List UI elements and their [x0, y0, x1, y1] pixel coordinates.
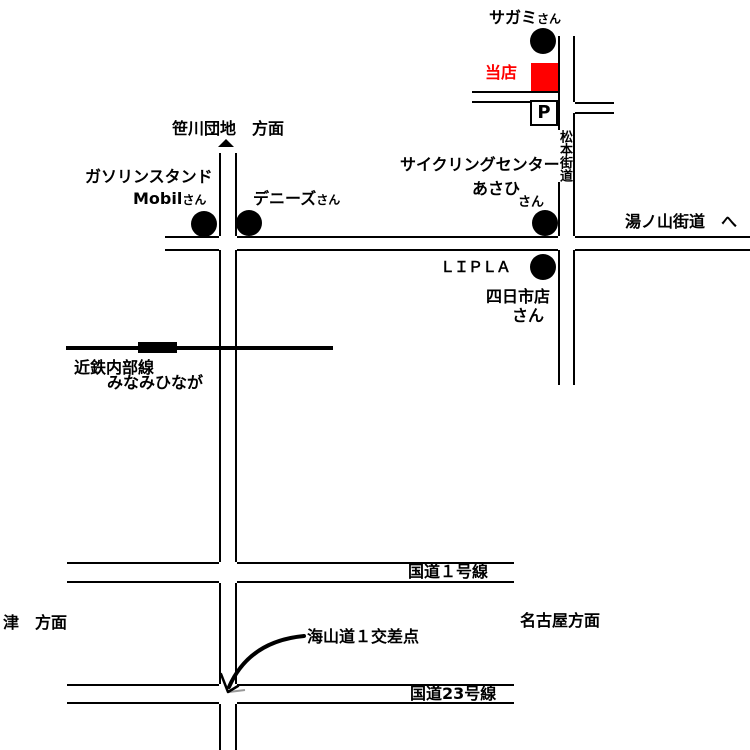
road-matsumoto-right-mid — [573, 113, 575, 236]
dennys-label: デニーズさん — [253, 191, 340, 207]
our-store-label: 当店 — [485, 65, 517, 81]
parking-box: P — [530, 100, 558, 126]
kaisando-intersection-label: 海山道１交差点 — [307, 629, 419, 645]
road-sasagawa-left-4 — [219, 704, 221, 750]
lipla-label: ＬＩＰＬＡ — [440, 260, 510, 275]
cycling-center-label: サイクリングセンター — [400, 157, 560, 173]
road-yunoyama-top-1 — [165, 236, 219, 238]
north-direction-triangle-icon — [218, 139, 234, 147]
road-matsumoto-right-lower — [573, 250, 575, 385]
minamihinaga-label: みなみひなが — [107, 375, 203, 391]
lipla-marker — [530, 254, 556, 280]
road-store-street-top — [472, 91, 558, 93]
intersection-arrow-icon — [212, 626, 322, 706]
route23-label: 国道23号線 — [410, 686, 496, 702]
dennys-marker — [236, 210, 262, 236]
road-store-street-bottom — [472, 101, 530, 103]
road-yunoyama-bottom-3 — [575, 249, 750, 251]
road-route1-top-left — [67, 562, 219, 564]
road-matsumoto-right-upper — [573, 36, 575, 102]
road-yunoyama-top-2 — [237, 236, 558, 238]
road-sasagawa-left-2 — [219, 250, 221, 562]
road-route23-top-left — [67, 684, 219, 686]
road-side-street-bottom — [575, 112, 614, 114]
lipla-branch-label: 四日市店 — [486, 289, 550, 305]
sagami-marker — [530, 28, 556, 54]
mobil-label: Mobilさん — [133, 191, 206, 207]
gas-station-label: ガソリンスタンド — [85, 169, 213, 185]
yunoyama-kaido-label: 湯ノ山街道 へ — [625, 214, 737, 230]
road-matsumoto-left-lower — [558, 250, 560, 385]
road-route23-bottom-left — [67, 702, 219, 704]
asahi-marker — [532, 210, 558, 236]
asahi-label: あさひ — [472, 181, 520, 197]
station-marker — [138, 342, 177, 353]
road-route1-bottom-right — [237, 581, 514, 583]
road-sasagawa-left-1 — [219, 153, 221, 236]
road-sasagawa-right-4 — [235, 704, 237, 750]
railway-line — [66, 346, 333, 350]
road-sasagawa-right-2 — [235, 250, 237, 562]
road-route1-bottom-left — [67, 581, 219, 583]
road-side-street-top — [575, 102, 614, 104]
route1-label: 国道１号線 — [408, 564, 488, 580]
road-yunoyama-bottom-1 — [165, 249, 219, 251]
road-yunoyama-top-3 — [575, 236, 750, 238]
sagami-label: サガミさん — [489, 10, 561, 26]
lipla-suffix-label: さん — [512, 308, 544, 324]
store-square — [531, 63, 558, 91]
nagoya-direction-label: 名古屋方面 — [520, 613, 600, 629]
asahi-suffix-label: さん — [518, 196, 544, 209]
road-yunoyama-bottom-2 — [237, 249, 558, 251]
parking-label: P — [537, 102, 550, 123]
sasagawa-danchi-label: 笹川団地 方面 — [172, 121, 284, 137]
store-access-map: P サガミさん 当店 松本街道 笹川団地 方面 ガソリンスタンド Mobilさん… — [0, 0, 750, 750]
mobil-marker — [191, 211, 217, 237]
tsu-direction-label: 津 方面 — [3, 615, 67, 631]
